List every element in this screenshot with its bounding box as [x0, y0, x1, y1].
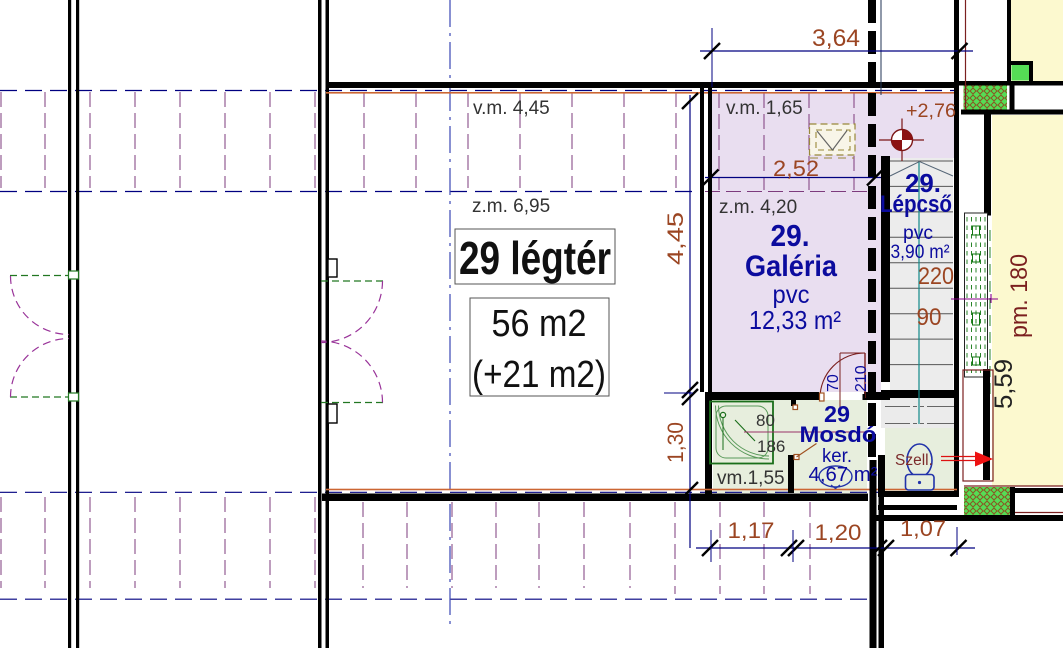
svg-text:Mosdó: Mosdó [800, 422, 877, 447]
svg-text:1,17: 1,17 [728, 518, 775, 543]
svg-text:220: 220 [918, 263, 954, 290]
svg-text:5,59: 5,59 [990, 359, 1018, 409]
svg-text:Galéria: Galéria [745, 250, 837, 283]
svg-text:186: 186 [757, 437, 785, 456]
svg-text:(+21 m2): (+21 m2) [472, 354, 606, 396]
svg-text:29 légtér: 29 légtér [459, 232, 611, 284]
svg-text:90: 90 [917, 304, 942, 331]
svg-text:vm.1,55: vm.1,55 [717, 468, 785, 489]
svg-text:pm. 180: pm. 180 [1006, 254, 1033, 338]
svg-text:12,33 m²: 12,33 m² [749, 305, 841, 335]
svg-text:+2,76: +2,76 [906, 101, 956, 122]
svg-text:Lépcső: Lépcső [880, 191, 952, 218]
svg-text:70: 70 [825, 374, 842, 392]
svg-text:1,07: 1,07 [900, 516, 946, 541]
svg-text:2,52: 2,52 [773, 156, 819, 181]
svg-text:pvc: pvc [903, 223, 933, 244]
svg-text:56 m2: 56 m2 [492, 303, 587, 345]
svg-text:Szell.: Szell. [895, 452, 933, 469]
svg-text:3,64: 3,64 [812, 25, 860, 52]
svg-text:4,67 m²: 4,67 m² [809, 464, 878, 486]
svg-text:4,45: 4,45 [663, 212, 688, 265]
svg-text:210: 210 [853, 365, 870, 392]
svg-text:v.m. 4,45: v.m. 4,45 [473, 98, 550, 119]
svg-text:80: 80 [756, 411, 775, 430]
svg-text:1,20: 1,20 [815, 520, 862, 545]
svg-text:3,90 m²: 3,90 m² [891, 242, 950, 263]
svg-text:z.m. 6,95: z.m. 6,95 [472, 196, 550, 217]
svg-text:v.m. 1,65: v.m. 1,65 [726, 98, 803, 119]
svg-text:z.m. 4,20: z.m. 4,20 [719, 197, 797, 218]
svg-text:1,30: 1,30 [663, 422, 688, 463]
svg-text:29.: 29. [771, 218, 810, 253]
